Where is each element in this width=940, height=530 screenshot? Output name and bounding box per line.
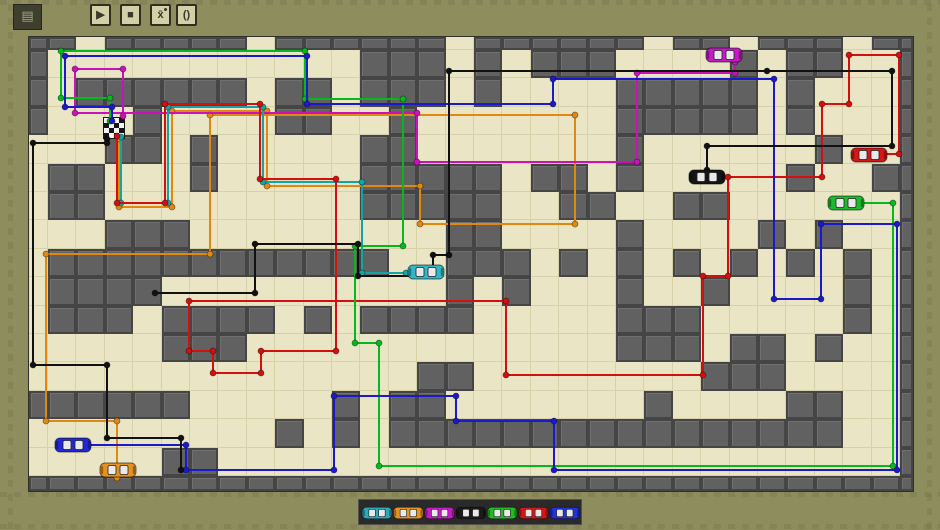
floor-cell[interactable]: [48, 362, 76, 390]
floor-cell[interactable]: [304, 362, 332, 390]
floor-cell[interactable]: [644, 50, 672, 78]
floor-cell[interactable]: [474, 306, 502, 334]
floor-cell[interactable]: [559, 391, 587, 419]
floor-cell[interactable]: [559, 448, 587, 476]
floor-cell[interactable]: [133, 50, 161, 78]
floor-cell[interactable]: [48, 334, 76, 362]
floor-cell[interactable]: [502, 220, 530, 248]
floor-cell[interactable]: [531, 334, 559, 362]
floor-cell[interactable]: [872, 135, 900, 163]
floor-cell[interactable]: [360, 391, 388, 419]
palette-car-blue[interactable]: [550, 507, 580, 518]
floor-cell[interactable]: [332, 107, 360, 135]
floor-cell[interactable]: [190, 419, 218, 447]
floor-cell[interactable]: [389, 362, 417, 390]
floor-cell[interactable]: [162, 107, 190, 135]
floor-cell[interactable]: [247, 164, 275, 192]
floor-cell[interactable]: [815, 448, 843, 476]
floor-cell[interactable]: [502, 107, 530, 135]
floor-cell[interactable]: [247, 78, 275, 106]
floor-cell[interactable]: [786, 334, 814, 362]
floor-cell[interactable]: [332, 78, 360, 106]
floor-cell[interactable]: [588, 164, 616, 192]
floor-cell[interactable]: [76, 135, 104, 163]
floor-cell[interactable]: [815, 249, 843, 277]
floor-cell[interactable]: [218, 419, 246, 447]
floor-cell[interactable]: [872, 50, 900, 78]
floor-cell[interactable]: [162, 135, 190, 163]
floor-cell[interactable]: [701, 50, 729, 78]
floor-cell[interactable]: [218, 135, 246, 163]
floor-cell[interactable]: [531, 78, 559, 106]
floor-cell[interactable]: [843, 419, 871, 447]
floor-cell[interactable]: [843, 220, 871, 248]
floor-cell[interactable]: [218, 164, 246, 192]
floor-cell[interactable]: [502, 50, 530, 78]
floor-cell[interactable]: [218, 448, 246, 476]
palette-car-black[interactable]: [456, 507, 486, 518]
floor-cell[interactable]: [105, 448, 133, 476]
floor-cell[interactable]: [730, 37, 758, 50]
floor-cell[interactable]: [389, 334, 417, 362]
floor-cell[interactable]: [531, 192, 559, 220]
floor-cell[interactable]: [673, 50, 701, 78]
floor-cell[interactable]: [474, 277, 502, 305]
floor-cell[interactable]: [417, 448, 445, 476]
floor-cell[interactable]: [190, 362, 218, 390]
floor-cell[interactable]: [872, 192, 900, 220]
floor-cell[interactable]: [389, 220, 417, 248]
floor-cell[interactable]: [673, 164, 701, 192]
floor-cell[interactable]: [786, 306, 814, 334]
floor-cell[interactable]: [76, 334, 104, 362]
waypoint-button[interactable]: x̄: [150, 4, 171, 26]
floor-cell[interactable]: [758, 249, 786, 277]
floor-cell[interactable]: [48, 448, 76, 476]
floor-cell[interactable]: [360, 448, 388, 476]
floor-cell[interactable]: [360, 419, 388, 447]
floor-cell[interactable]: [218, 50, 246, 78]
floor-cell[interactable]: [872, 419, 900, 447]
floor-cell[interactable]: [644, 249, 672, 277]
floor-cell[interactable]: [360, 277, 388, 305]
floor-cell[interactable]: [162, 277, 190, 305]
floor-cell[interactable]: [332, 334, 360, 362]
floor-cell[interactable]: [133, 164, 161, 192]
floor-cell[interactable]: [417, 277, 445, 305]
floor-cell[interactable]: [332, 135, 360, 163]
floor-cell[interactable]: [162, 192, 190, 220]
floor-cell[interactable]: [502, 448, 530, 476]
floor-cell[interactable]: [474, 391, 502, 419]
floor-cell[interactable]: [758, 78, 786, 106]
floor-cell[interactable]: [730, 220, 758, 248]
floor-cell[interactable]: [446, 448, 474, 476]
floor-cell[interactable]: [474, 448, 502, 476]
floor-cell[interactable]: [247, 50, 275, 78]
floor-cell[interactable]: [474, 135, 502, 163]
floor-cell[interactable]: [360, 107, 388, 135]
floor-cell[interactable]: [843, 391, 871, 419]
floor-cell[interactable]: [105, 334, 133, 362]
floor-cell[interactable]: [872, 220, 900, 248]
floor-cell[interactable]: [758, 192, 786, 220]
floor-cell[interactable]: [133, 192, 161, 220]
floor-cell[interactable]: [843, 107, 871, 135]
floor-cell[interactable]: [76, 50, 104, 78]
floor-cell[interactable]: [218, 277, 246, 305]
floor-cell[interactable]: [304, 50, 332, 78]
floor-cell[interactable]: [843, 362, 871, 390]
floor-cell[interactable]: [644, 192, 672, 220]
floor-cell[interactable]: [247, 391, 275, 419]
floor-cell[interactable]: [815, 78, 843, 106]
floor-cell[interactable]: [275, 448, 303, 476]
floor-cell[interactable]: [588, 306, 616, 334]
floor-cell[interactable]: [701, 249, 729, 277]
floor-cell[interactable]: [815, 192, 843, 220]
floor-cell[interactable]: [758, 277, 786, 305]
floor-cell[interactable]: [701, 334, 729, 362]
floor-cell[interactable]: [105, 419, 133, 447]
floor-cell[interactable]: [872, 107, 900, 135]
floor-cell[interactable]: [332, 277, 360, 305]
floor-cell[interactable]: [588, 135, 616, 163]
floor-cell[interactable]: [815, 362, 843, 390]
floor-cell[interactable]: [701, 448, 729, 476]
floor-cell[interactable]: [162, 362, 190, 390]
floor-cell[interactable]: [389, 448, 417, 476]
floor-cell[interactable]: [531, 277, 559, 305]
floor-cell[interactable]: [446, 107, 474, 135]
floor-cell[interactable]: [531, 220, 559, 248]
floor-cell[interactable]: [616, 391, 644, 419]
floor-cell[interactable]: [275, 220, 303, 248]
floor-cell[interactable]: [247, 362, 275, 390]
floor-cell[interactable]: [701, 135, 729, 163]
floor-cell[interactable]: [332, 164, 360, 192]
floor-cell[interactable]: [446, 334, 474, 362]
floor-cell[interactable]: [872, 362, 900, 390]
floor-cell[interactable]: [48, 107, 76, 135]
floor-cell[interactable]: [48, 135, 76, 163]
floor-cell[interactable]: [218, 107, 246, 135]
floor-cell[interactable]: [29, 249, 48, 277]
floor-cell[interactable]: [786, 362, 814, 390]
floor-cell[interactable]: [190, 277, 218, 305]
floor-cell[interactable]: [105, 362, 133, 390]
floor-cell[interactable]: [644, 277, 672, 305]
floor-cell[interactable]: [502, 78, 530, 106]
floor-cell[interactable]: [389, 277, 417, 305]
floor-cell[interactable]: [559, 78, 587, 106]
floor-cell[interactable]: [446, 78, 474, 106]
palette-car-red[interactable]: [519, 507, 549, 518]
floor-cell[interactable]: [133, 362, 161, 390]
floor-cell[interactable]: [48, 419, 76, 447]
floor-cell[interactable]: [29, 164, 48, 192]
floor-cell[interactable]: [758, 164, 786, 192]
floor-cell[interactable]: [360, 362, 388, 390]
floor-cell[interactable]: [531, 306, 559, 334]
floor-cell[interactable]: [502, 164, 530, 192]
floor-cell[interactable]: [872, 306, 900, 334]
floor-cell[interactable]: [275, 164, 303, 192]
floor-cell[interactable]: [275, 135, 303, 163]
floor-cell[interactable]: [815, 306, 843, 334]
floor-cell[interactable]: [843, 50, 871, 78]
floor-cell[interactable]: [247, 448, 275, 476]
floor-cell[interactable]: [843, 334, 871, 362]
floor-cell[interactable]: [474, 334, 502, 362]
floor-cell[interactable]: [417, 334, 445, 362]
floor-cell[interactable]: [275, 306, 303, 334]
floor-cell[interactable]: [218, 192, 246, 220]
floor-cell[interactable]: [304, 448, 332, 476]
floor-cell[interactable]: [872, 334, 900, 362]
floor-cell[interactable]: [559, 135, 587, 163]
floor-cell[interactable]: [730, 391, 758, 419]
floor-cell[interactable]: [588, 249, 616, 277]
floor-cell[interactable]: [502, 334, 530, 362]
floor-cell[interactable]: [502, 135, 530, 163]
floor-cell[interactable]: [275, 391, 303, 419]
floor-cell[interactable]: [502, 362, 530, 390]
floor-cell[interactable]: [616, 362, 644, 390]
floor-cell[interactable]: [389, 249, 417, 277]
floor-cell[interactable]: [247, 419, 275, 447]
floor-cell[interactable]: [730, 164, 758, 192]
floor-cell[interactable]: [417, 107, 445, 135]
floor-cell[interactable]: [417, 135, 445, 163]
floor-cell[interactable]: [673, 448, 701, 476]
palette-car-teal[interactable]: [362, 507, 392, 518]
floor-cell[interactable]: [616, 50, 644, 78]
palette-car-green[interactable]: [487, 507, 517, 518]
floor-cell[interactable]: [786, 192, 814, 220]
floor-cell[interactable]: [247, 135, 275, 163]
floor-cell[interactable]: [559, 220, 587, 248]
floor-cell[interactable]: [730, 192, 758, 220]
floor-cell[interactable]: [588, 362, 616, 390]
floor-cell[interactable]: [559, 362, 587, 390]
floor-cell[interactable]: [76, 107, 104, 135]
floor-cell[interactable]: [872, 277, 900, 305]
floor-cell[interactable]: [531, 107, 559, 135]
floor-cell[interactable]: [786, 277, 814, 305]
floor-cell[interactable]: [332, 448, 360, 476]
floor-cell[interactable]: [304, 135, 332, 163]
floor-cell[interactable]: [162, 419, 190, 447]
floor-cell[interactable]: [872, 249, 900, 277]
floor-cell[interactable]: [417, 220, 445, 248]
floor-cell[interactable]: [843, 448, 871, 476]
floor-cell[interactable]: [531, 362, 559, 390]
floor-cell[interactable]: [76, 419, 104, 447]
floor-cell[interactable]: [644, 448, 672, 476]
floor-cell[interactable]: [872, 78, 900, 106]
floor-cell[interactable]: [474, 107, 502, 135]
floor-cell[interactable]: [843, 192, 871, 220]
floor-cell[interactable]: [531, 448, 559, 476]
floor-cell[interactable]: [446, 391, 474, 419]
floor-cell[interactable]: [304, 277, 332, 305]
floor-cell[interactable]: [786, 220, 814, 248]
floor-cell[interactable]: [105, 50, 133, 78]
floor-cell[interactable]: [588, 277, 616, 305]
stop-button[interactable]: ■: [120, 4, 141, 26]
floor-cell[interactable]: [332, 192, 360, 220]
floor-cell[interactable]: [673, 135, 701, 163]
floor-cell[interactable]: [190, 391, 218, 419]
floor-cell[interactable]: [673, 391, 701, 419]
floor-cell[interactable]: [76, 37, 104, 50]
floor-cell[interactable]: [133, 306, 161, 334]
floor-cell[interactable]: [588, 78, 616, 106]
floor-cell[interactable]: [29, 192, 48, 220]
floor-cell[interactable]: [29, 306, 48, 334]
floor-cell[interactable]: [29, 448, 48, 476]
floor-cell[interactable]: [190, 220, 218, 248]
palette-car-magenta[interactable]: [425, 507, 455, 518]
floor-cell[interactable]: [304, 220, 332, 248]
floor-cell[interactable]: [730, 448, 758, 476]
floor-cell[interactable]: [815, 277, 843, 305]
floor-cell[interactable]: [531, 249, 559, 277]
floor-cell[interactable]: [502, 391, 530, 419]
floor-cell[interactable]: [559, 277, 587, 305]
floor-cell[interactable]: [758, 50, 786, 78]
floor-cell[interactable]: [701, 306, 729, 334]
floor-cell[interactable]: [247, 220, 275, 248]
floor-cell[interactable]: [644, 164, 672, 192]
floor-cell[interactable]: [218, 220, 246, 248]
floor-cell[interactable]: [588, 391, 616, 419]
floor-cell[interactable]: [304, 334, 332, 362]
floor-cell[interactable]: [758, 107, 786, 135]
floor-cell[interactable]: [559, 306, 587, 334]
floor-cell[interactable]: [872, 448, 900, 476]
floor-cell[interactable]: [588, 448, 616, 476]
floor-cell[interactable]: [48, 220, 76, 248]
floor-cell[interactable]: [701, 391, 729, 419]
floor-cell[interactable]: [758, 135, 786, 163]
floor-cell[interactable]: [502, 192, 530, 220]
floor-cell[interactable]: [105, 164, 133, 192]
floor-cell[interactable]: [872, 391, 900, 419]
floor-cell[interactable]: [730, 306, 758, 334]
floor-cell[interactable]: [786, 135, 814, 163]
floor-cell[interactable]: [247, 107, 275, 135]
floor-cell[interactable]: [815, 164, 843, 192]
floor-cell[interactable]: [332, 50, 360, 78]
floor-cell[interactable]: [815, 107, 843, 135]
floor-cell[interactable]: [133, 334, 161, 362]
floor-cell[interactable]: [588, 107, 616, 135]
floor-cell[interactable]: [417, 249, 445, 277]
floor-cell[interactable]: [304, 419, 332, 447]
floor-cell[interactable]: [190, 50, 218, 78]
floor-cell[interactable]: [275, 362, 303, 390]
floor-cell[interactable]: [218, 362, 246, 390]
floor-cell[interactable]: [29, 334, 48, 362]
floor-cell[interactable]: [616, 448, 644, 476]
floor-cell[interactable]: [673, 362, 701, 390]
floor-cell[interactable]: [247, 37, 275, 50]
floor-cell[interactable]: [133, 419, 161, 447]
floor-cell[interactable]: [190, 192, 218, 220]
floor-cell[interactable]: [786, 448, 814, 476]
floor-cell[interactable]: [843, 37, 871, 50]
floor-cell[interactable]: [275, 192, 303, 220]
floor-cell[interactable]: [275, 334, 303, 362]
floor-cell[interactable]: [502, 306, 530, 334]
floor-cell[interactable]: [48, 78, 76, 106]
floor-cell[interactable]: [332, 362, 360, 390]
floor-cell[interactable]: [559, 334, 587, 362]
floor-cell[interactable]: [29, 135, 48, 163]
floor-cell[interactable]: [644, 362, 672, 390]
floor-cell[interactable]: [531, 135, 559, 163]
floor-cell[interactable]: [76, 448, 104, 476]
floor-cell[interactable]: [673, 220, 701, 248]
floor-cell[interactable]: [133, 448, 161, 476]
floor-cell[interactable]: [247, 192, 275, 220]
floor-cell[interactable]: [474, 362, 502, 390]
floor-cell[interactable]: [275, 277, 303, 305]
floor-cell[interactable]: [644, 135, 672, 163]
floor-cell[interactable]: [758, 306, 786, 334]
floor-cell[interactable]: [76, 220, 104, 248]
floor-cell[interactable]: [588, 334, 616, 362]
floor-cell[interactable]: [304, 164, 332, 192]
floor-cell[interactable]: [247, 277, 275, 305]
floor-cell[interactable]: [446, 135, 474, 163]
floor-cell[interactable]: [446, 50, 474, 78]
floor-cell[interactable]: [162, 164, 190, 192]
floor-cell[interactable]: [588, 220, 616, 248]
floor-cell[interactable]: [730, 277, 758, 305]
floor-cell[interactable]: [758, 448, 786, 476]
floor-cell[interactable]: [730, 135, 758, 163]
floor-cell[interactable]: [332, 306, 360, 334]
brackets-button[interactable]: (): [176, 4, 197, 26]
floor-cell[interactable]: [190, 107, 218, 135]
floor-cell[interactable]: [843, 78, 871, 106]
palette-car-orange[interactable]: [394, 507, 424, 518]
floor-cell[interactable]: [29, 362, 48, 390]
floor-cell[interactable]: [332, 220, 360, 248]
floor-cell[interactable]: [29, 277, 48, 305]
floor-cell[interactable]: [29, 220, 48, 248]
floor-cell[interactable]: [758, 391, 786, 419]
floor-cell[interactable]: [105, 192, 133, 220]
floor-cell[interactable]: [29, 419, 48, 447]
floor-cell[interactable]: [531, 391, 559, 419]
floor-cell[interactable]: [644, 220, 672, 248]
floor-cell[interactable]: [76, 362, 104, 390]
floor-cell[interactable]: [701, 164, 729, 192]
floor-cell[interactable]: [304, 192, 332, 220]
floor-cell[interactable]: [559, 107, 587, 135]
floor-cell[interactable]: [446, 37, 474, 50]
floor-cell[interactable]: [304, 391, 332, 419]
floor-cell[interactable]: [48, 50, 76, 78]
floor-cell[interactable]: [673, 277, 701, 305]
floor-cell[interactable]: [360, 334, 388, 362]
floor-cell[interactable]: [644, 37, 672, 50]
floor-cell[interactable]: [247, 334, 275, 362]
